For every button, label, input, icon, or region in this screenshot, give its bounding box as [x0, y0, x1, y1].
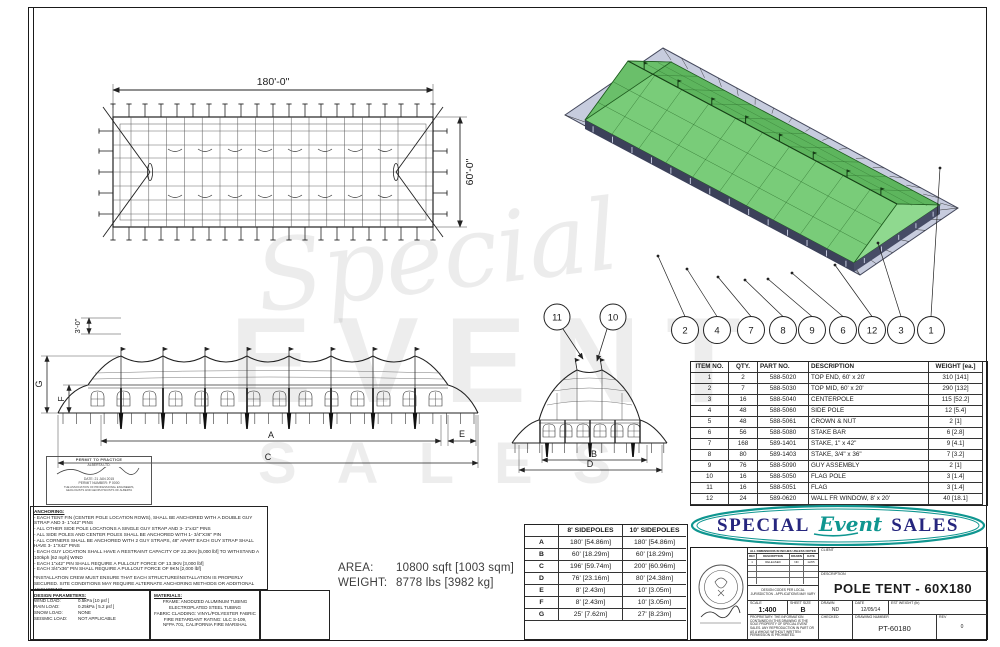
permit-stamp: PERMIT TO PRACTICE ALBERTA LTD. DATE: 21…: [46, 456, 152, 505]
date-cell: DATE 12/05/14: [853, 601, 889, 615]
side-elevation: A E C G F 3'-0": [33, 288, 493, 478]
design-parameters: DESIGN PARAMETERS: WIND LOAD:0.5kPa [10 …: [30, 590, 150, 640]
sidepole-table-box: 8' SIDEPOLES 10' SIDEPOLES A 180' [54.86…: [524, 524, 688, 640]
callout-6: 6: [830, 317, 857, 344]
svg-text:10: 10: [608, 313, 619, 324]
callout-8: 8: [770, 317, 797, 344]
col-header: ITEM NO.: [691, 362, 729, 373]
end-ground-stakes: [515, 443, 664, 457]
logo-word-event: Event: [819, 512, 882, 536]
dim-3ft: 3'-0": [73, 318, 82, 333]
callout-7: 7: [738, 317, 765, 344]
materials-line: FABRIC CLADDING: VINYL/POLYESTER FABRIC: [154, 611, 256, 617]
plan-scallop-marks: [168, 149, 392, 198]
end-elevation: 11 10 B: [487, 293, 692, 473]
area-label: AREA:: [338, 561, 396, 576]
col-header: WEIGHT [ea.]: [929, 362, 983, 373]
revision-table: REV DESCRIPTION DRAWN DATE 1 RELEASED ND…: [748, 554, 819, 586]
scale-cell: SCALE 1:400: [748, 601, 788, 615]
side-ground-stakes: [63, 413, 474, 429]
dim-g: G: [34, 380, 44, 387]
weight-value: 8778 lbs [3982 kg]: [396, 576, 528, 591]
callout-11: 11: [544, 304, 570, 330]
dim-e: E: [459, 429, 465, 439]
scale-value: 1:400: [750, 607, 785, 614]
svg-text:9: 9: [809, 326, 814, 337]
col-header: QTY.: [729, 362, 758, 373]
drawn-cell: DRAWN ND: [819, 601, 853, 615]
description-cell: DESCRIPTION POLE TENT - 60X180: [819, 572, 987, 601]
end-wall-windows: [540, 420, 640, 443]
sheet-size-value: B: [790, 607, 816, 614]
rev-value: 0: [939, 624, 985, 630]
end-dimensions: B D: [519, 445, 662, 473]
dim-f: F: [56, 396, 66, 401]
logo-word-special: SPECIAL: [717, 515, 810, 537]
callout-9: 9: [799, 317, 826, 344]
title-block: ALL DIMENSIONS IN INCHES UNLESS NOTED RE…: [690, 547, 988, 640]
company-logo: SPECIAL Event SALES: [690, 505, 986, 546]
area-value: 10800 sqft [1003 sqm]: [396, 561, 528, 576]
engineer-seal-cell: [691, 548, 748, 639]
parts-table: ITEM NO. QTY. PART NO. DESCRIPTION WEIGH…: [690, 361, 988, 506]
stamp-signature: [51, 467, 147, 476]
iso-callouts: 2 4 7 8 9 6 12 3 1: [672, 317, 945, 344]
svg-text:8: 8: [780, 326, 785, 337]
anchoring-line: - EACH 3/4"x36" PIN SHALL REQUIRE A PULL…: [34, 566, 264, 572]
callout-3: 3: [888, 317, 915, 344]
callout-10: 10: [600, 304, 626, 330]
drawing-sheet: Special EVENT SALES 180'-0" 60'-0": [0, 0, 1000, 647]
client-cell: CLIENT: [819, 548, 987, 572]
dim-a: A: [268, 430, 274, 440]
plan-height-dim: 60'-0": [464, 158, 476, 185]
drawing-number-value: PT-60180: [855, 624, 934, 633]
callout-4: 4: [704, 317, 731, 344]
drawing-title: POLE TENT - 60X180: [821, 581, 985, 596]
anchoring-notes: ANCHORING: - EACH TENT FIN (CENTER POLE …: [30, 506, 268, 590]
sheet-size-cell: SHEET SIZE B: [788, 601, 819, 615]
drawing-number-cell: DRAWING NUMBER PT-60180: [853, 615, 937, 639]
signature-scribble: [701, 606, 740, 618]
rev-cell: REV 0: [937, 615, 987, 639]
svg-text:1: 1: [928, 326, 933, 337]
svg-text:3: 3: [898, 326, 903, 337]
svg-text:12: 12: [867, 326, 878, 337]
seal-emblem: [715, 578, 727, 596]
callout-1: 1: [918, 317, 945, 344]
proprietary-disclaimer: PROPRIETARY: THE INFORMATION CONTAINED I…: [748, 615, 819, 639]
sidepole-table: 8' SIDEPOLES 10' SIDEPOLES A 180' [54.86…: [525, 525, 687, 621]
svg-text:7: 7: [748, 326, 753, 337]
end-callouts: 11 10: [544, 304, 626, 361]
plan-grid-lines: [113, 117, 433, 227]
plan-width-dim: 180'-0": [257, 76, 290, 88]
empty-box: [260, 590, 330, 640]
materials-notes: MATERIALS: FRAME: ANODIZED ALUMINUM TUBI…: [150, 590, 260, 640]
est-weight-cell: EST WEIGHT (lb): [889, 601, 987, 615]
col-header: DESCRIPTION: [809, 362, 929, 373]
logo-word-sales: SALES: [891, 515, 959, 537]
dim-b: B: [591, 449, 597, 459]
dim-c: C: [265, 452, 272, 462]
anchoring-line: - EACH GUY LOCATION SHALL HAVE A RESTRAI…: [34, 549, 264, 560]
side-dimensions: A E C G F 3'-0": [34, 318, 478, 468]
col-header: PART NO.: [758, 362, 809, 373]
area-weight-block: AREA: 10800 sqft [1003 sqm] WEIGHT: 8778…: [338, 561, 528, 591]
callout-12: 12: [859, 317, 886, 344]
svg-text:6: 6: [840, 326, 845, 337]
svg-text:11: 11: [552, 313, 562, 324]
jurisdiction-note: DESIGN CODES PER LOCAL JURISDICTION - AP…: [748, 586, 819, 601]
seal-outer-circle: [699, 565, 743, 609]
anchoring-line: - ALL CORNERS SHALL BE ANCHORED WITH 2 G…: [34, 538, 264, 549]
side-wall-windows: [91, 391, 442, 406]
svg-text:4: 4: [714, 326, 719, 337]
dim-d: D: [587, 459, 594, 469]
weight-label: WEIGHT:: [338, 576, 396, 591]
date-value: 12/05/14: [855, 607, 886, 613]
materials-line: ELECTROPLATED STEEL TUBING: [154, 605, 256, 611]
plan-view: 180'-0" 60'-0": [40, 48, 490, 273]
materials-line: FRAME: ANODIZED ALUMINUM TUBING: [154, 599, 256, 605]
materials-line: NFPA 701, CALIFORNIA FIRE MARSHAL: [154, 622, 256, 628]
anchoring-line: - EACH TENT FIN (CENTER POLE LOCATION RO…: [34, 515, 264, 526]
checked-cell: CHECKED: [819, 615, 853, 639]
